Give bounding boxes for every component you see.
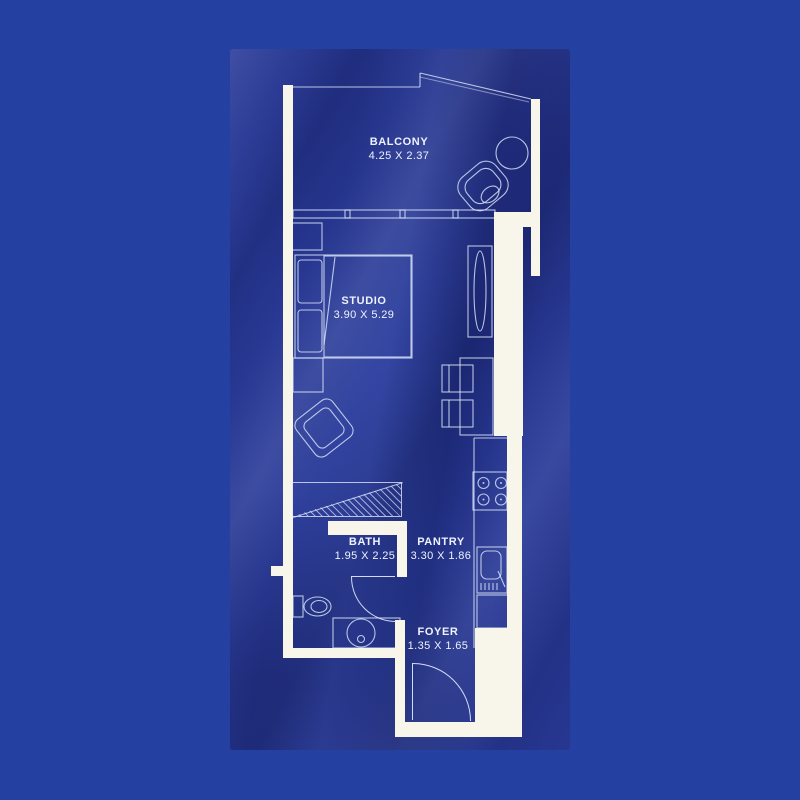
dining-table-set — [442, 358, 493, 435]
service-shaft — [292, 482, 402, 517]
balcony-dimensions: 4.25 X 2.37 — [329, 149, 469, 163]
fabric-background-panel: BALCONY 4.25 X 2.37 STUDIO 3.90 X 5.29 B… — [230, 49, 570, 750]
wall-bottom — [395, 722, 522, 737]
pantry-name: PANTRY — [371, 535, 511, 549]
pantry-dimensions: 3.30 X 1.86 — [371, 549, 511, 563]
sliding-window — [293, 210, 495, 218]
toilet — [293, 596, 331, 617]
armchair — [292, 396, 357, 461]
studio-name: STUDIO — [294, 294, 434, 308]
studio-cabinet — [292, 223, 322, 250]
floor-plan-page: BALCONY 4.25 X 2.37 STUDIO 3.90 X 5.29 B… — [0, 0, 800, 800]
foyer-dimensions: 1.35 X 1.65 — [368, 639, 508, 653]
stove — [473, 472, 507, 510]
wall-balcony-right — [531, 99, 540, 276]
foyer-label: FOYER 1.35 X 1.65 — [368, 625, 508, 653]
wall-left — [283, 85, 293, 658]
balcony-label: BALCONY 4.25 X 2.37 — [329, 135, 469, 163]
wardrobe-tv-unit — [468, 246, 492, 337]
pantry-label: PANTRY 3.30 X 1.86 — [371, 535, 511, 563]
nightstand — [293, 358, 323, 392]
studio-label: STUDIO 3.90 X 5.29 — [294, 294, 434, 322]
kitchen-cabinet — [477, 595, 509, 628]
foyer-name: FOYER — [368, 625, 508, 639]
studio-dimensions: 3.90 X 5.29 — [294, 308, 434, 322]
wall-bath-top — [328, 521, 398, 535]
wall-studio-right — [494, 212, 523, 436]
balcony-name: BALCONY — [329, 135, 469, 149]
balcony-table — [496, 137, 528, 169]
wall-kitchen-right — [507, 436, 522, 630]
balcony-railing — [293, 73, 531, 102]
balcony-chair — [453, 156, 514, 216]
wall-pilaster — [271, 566, 284, 576]
